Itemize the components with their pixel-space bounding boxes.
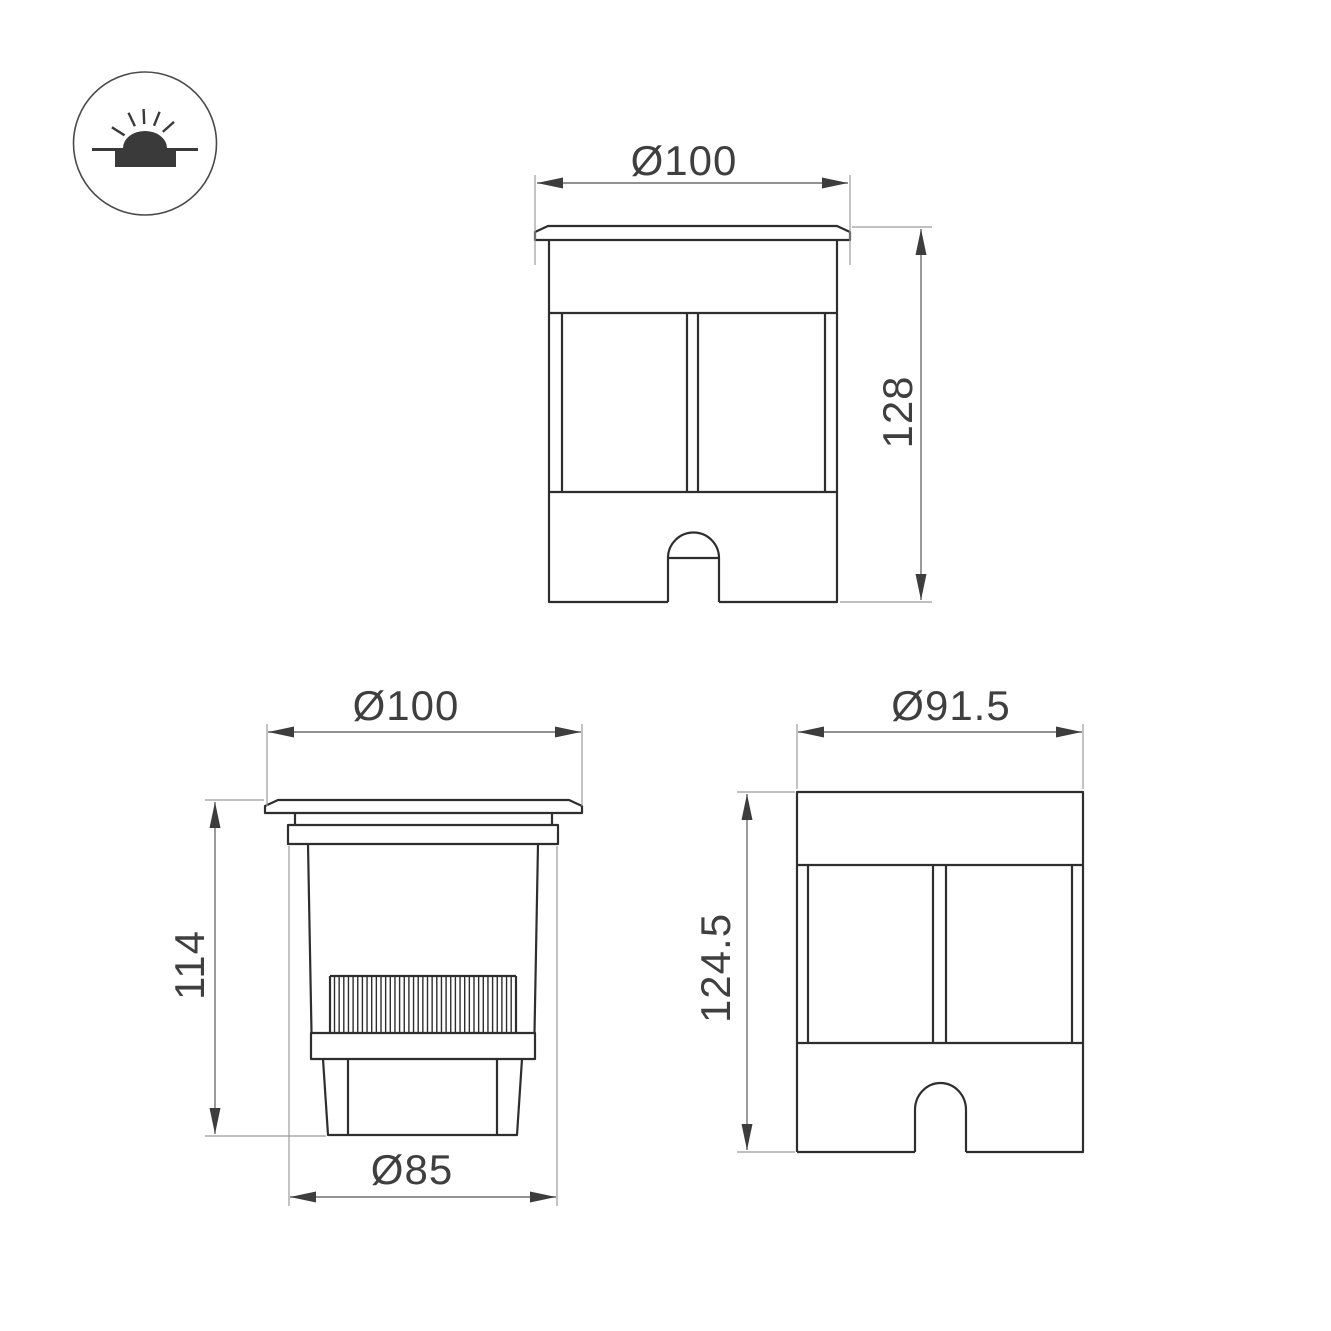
side-collar [288,825,558,844]
side-dimension-lines [215,732,581,1197]
front-body-outline [549,240,837,602]
back-section-lines [797,865,1083,1043]
side-view-drawing [265,800,582,1135]
side-view-dimensions [205,724,582,1206]
back-view-drawing [797,792,1083,1152]
front-diameter-dim-label: Ø100 [631,137,738,185]
side-lower-housing [323,1059,522,1135]
front-dimension-lines [537,183,921,600]
side-bottom-diameter-dim-label: Ø85 [371,1146,453,1194]
side-led-plate [311,1033,535,1059]
back-body-outline [797,792,1083,1152]
side-heatsink-fins [335,976,512,1033]
side-step-ring [295,813,552,825]
front-flange [535,226,850,240]
back-view-dimensions [737,724,1083,1152]
side-dimension-arrows [210,727,582,1203]
side-extension-lines [205,724,582,1206]
front-cable-notch [668,533,719,603]
back-height-dim-label: 124.5 [692,913,740,1023]
recessed-light-icon [74,72,217,215]
dimension-drawing-canvas: Ø100 128 Ø100 114 Ø85 Ø91.5 124.5 [0,0,1331,1331]
back-cable-notch [915,1083,966,1152]
back-window-mullions [808,865,1072,1043]
front-window-mullions [562,313,825,492]
technical-drawing [0,0,1331,1331]
front-view-drawing [535,226,850,602]
front-height-dim-label: 128 [874,375,922,448]
side-flange [265,800,582,813]
front-section-lines [549,313,837,492]
back-extension-lines [737,724,1083,1152]
back-diameter-dim-label: Ø91.5 [891,682,1010,730]
side-height-dim-label: 114 [166,930,214,1000]
back-dimension-arrows [742,727,1083,1151]
side-top-diameter-dim-label: Ø100 [353,682,460,730]
